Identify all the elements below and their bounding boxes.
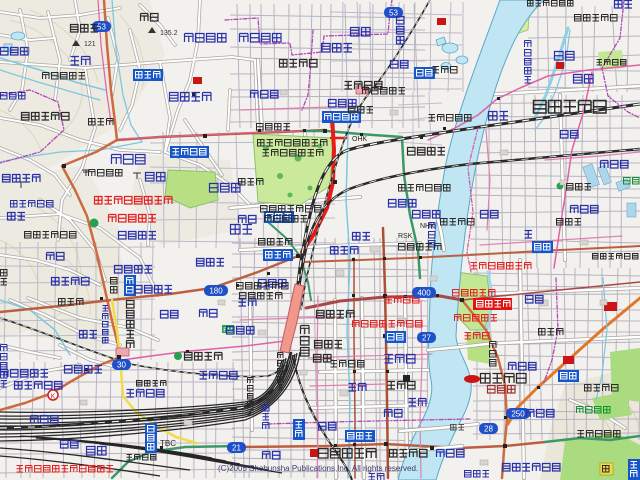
svg-text:K: K (51, 394, 56, 401)
svg-text:180: 180 (209, 287, 223, 296)
svg-text:53: 53 (97, 23, 106, 32)
svg-text:27: 27 (422, 334, 431, 343)
svg-text:121: 121 (84, 41, 96, 48)
svg-text:RSK: RSK (398, 233, 413, 240)
svg-text:(C)2005 Shobunsha Publications: (C)2005 Shobunsha Publications,Inc. All … (218, 464, 418, 473)
svg-text:30: 30 (117, 361, 126, 370)
svg-text:400: 400 (417, 289, 431, 298)
svg-text:250: 250 (511, 410, 525, 419)
svg-text:NHK: NHK (420, 223, 435, 230)
svg-text:135.2: 135.2 (160, 30, 178, 37)
svg-text:28: 28 (484, 425, 493, 434)
svg-text:21: 21 (232, 444, 241, 453)
svg-text:OHK: OHK (352, 136, 368, 143)
svg-text:TBC: TBC (160, 439, 176, 448)
